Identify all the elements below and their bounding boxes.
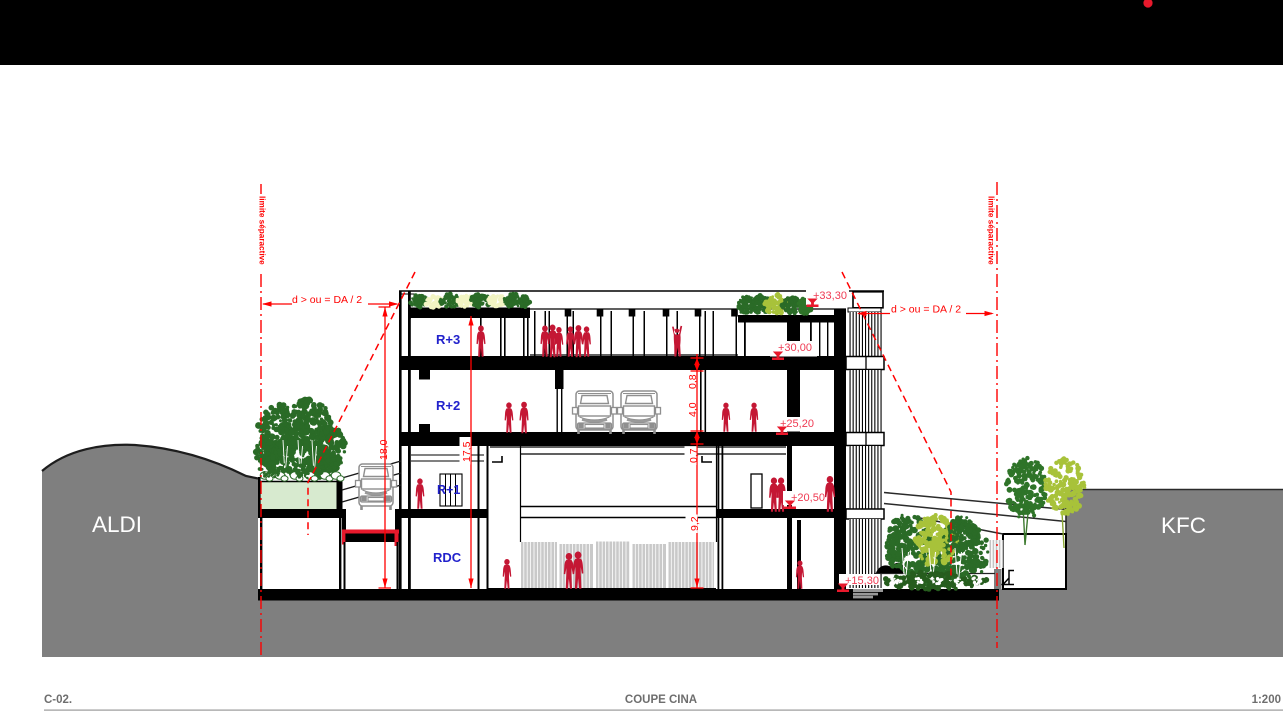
svg-text:+30,00: +30,00 xyxy=(778,342,812,354)
svg-text:C-02.: C-02. xyxy=(44,694,72,706)
svg-text:18,0: 18,0 xyxy=(378,439,390,460)
svg-text:ALDI: ALDI xyxy=(92,512,142,537)
svg-text:d > ou = DA / 2: d > ou = DA / 2 xyxy=(891,304,961,316)
svg-text:0,8: 0,8 xyxy=(687,374,699,389)
svg-text:R+3: R+3 xyxy=(436,332,460,347)
svg-text:KFC: KFC xyxy=(1161,513,1206,538)
svg-text:limite séparactive: limite séparactive xyxy=(987,196,996,265)
svg-text:1:200: 1:200 xyxy=(1252,694,1281,706)
svg-text:d > ou = DA / 2: d > ou = DA / 2 xyxy=(292,294,362,306)
svg-text:COUPE CINA: COUPE CINA xyxy=(625,694,697,706)
svg-text:limite séparactive: limite séparactive xyxy=(258,196,267,265)
svg-text:9,2: 9,2 xyxy=(689,516,701,531)
svg-text:RDC: RDC xyxy=(433,550,462,565)
svg-text:0,7: 0,7 xyxy=(688,448,700,463)
svg-text:R+2: R+2 xyxy=(436,398,460,413)
svg-text:+20,50: +20,50 xyxy=(791,492,825,504)
svg-text:R+1: R+1 xyxy=(437,483,460,497)
svg-text:+15,30: +15,30 xyxy=(845,575,879,587)
svg-text:+33,30: +33,30 xyxy=(813,290,847,302)
svg-text:4,0: 4,0 xyxy=(687,402,699,417)
svg-text:17,5: 17,5 xyxy=(461,441,473,462)
